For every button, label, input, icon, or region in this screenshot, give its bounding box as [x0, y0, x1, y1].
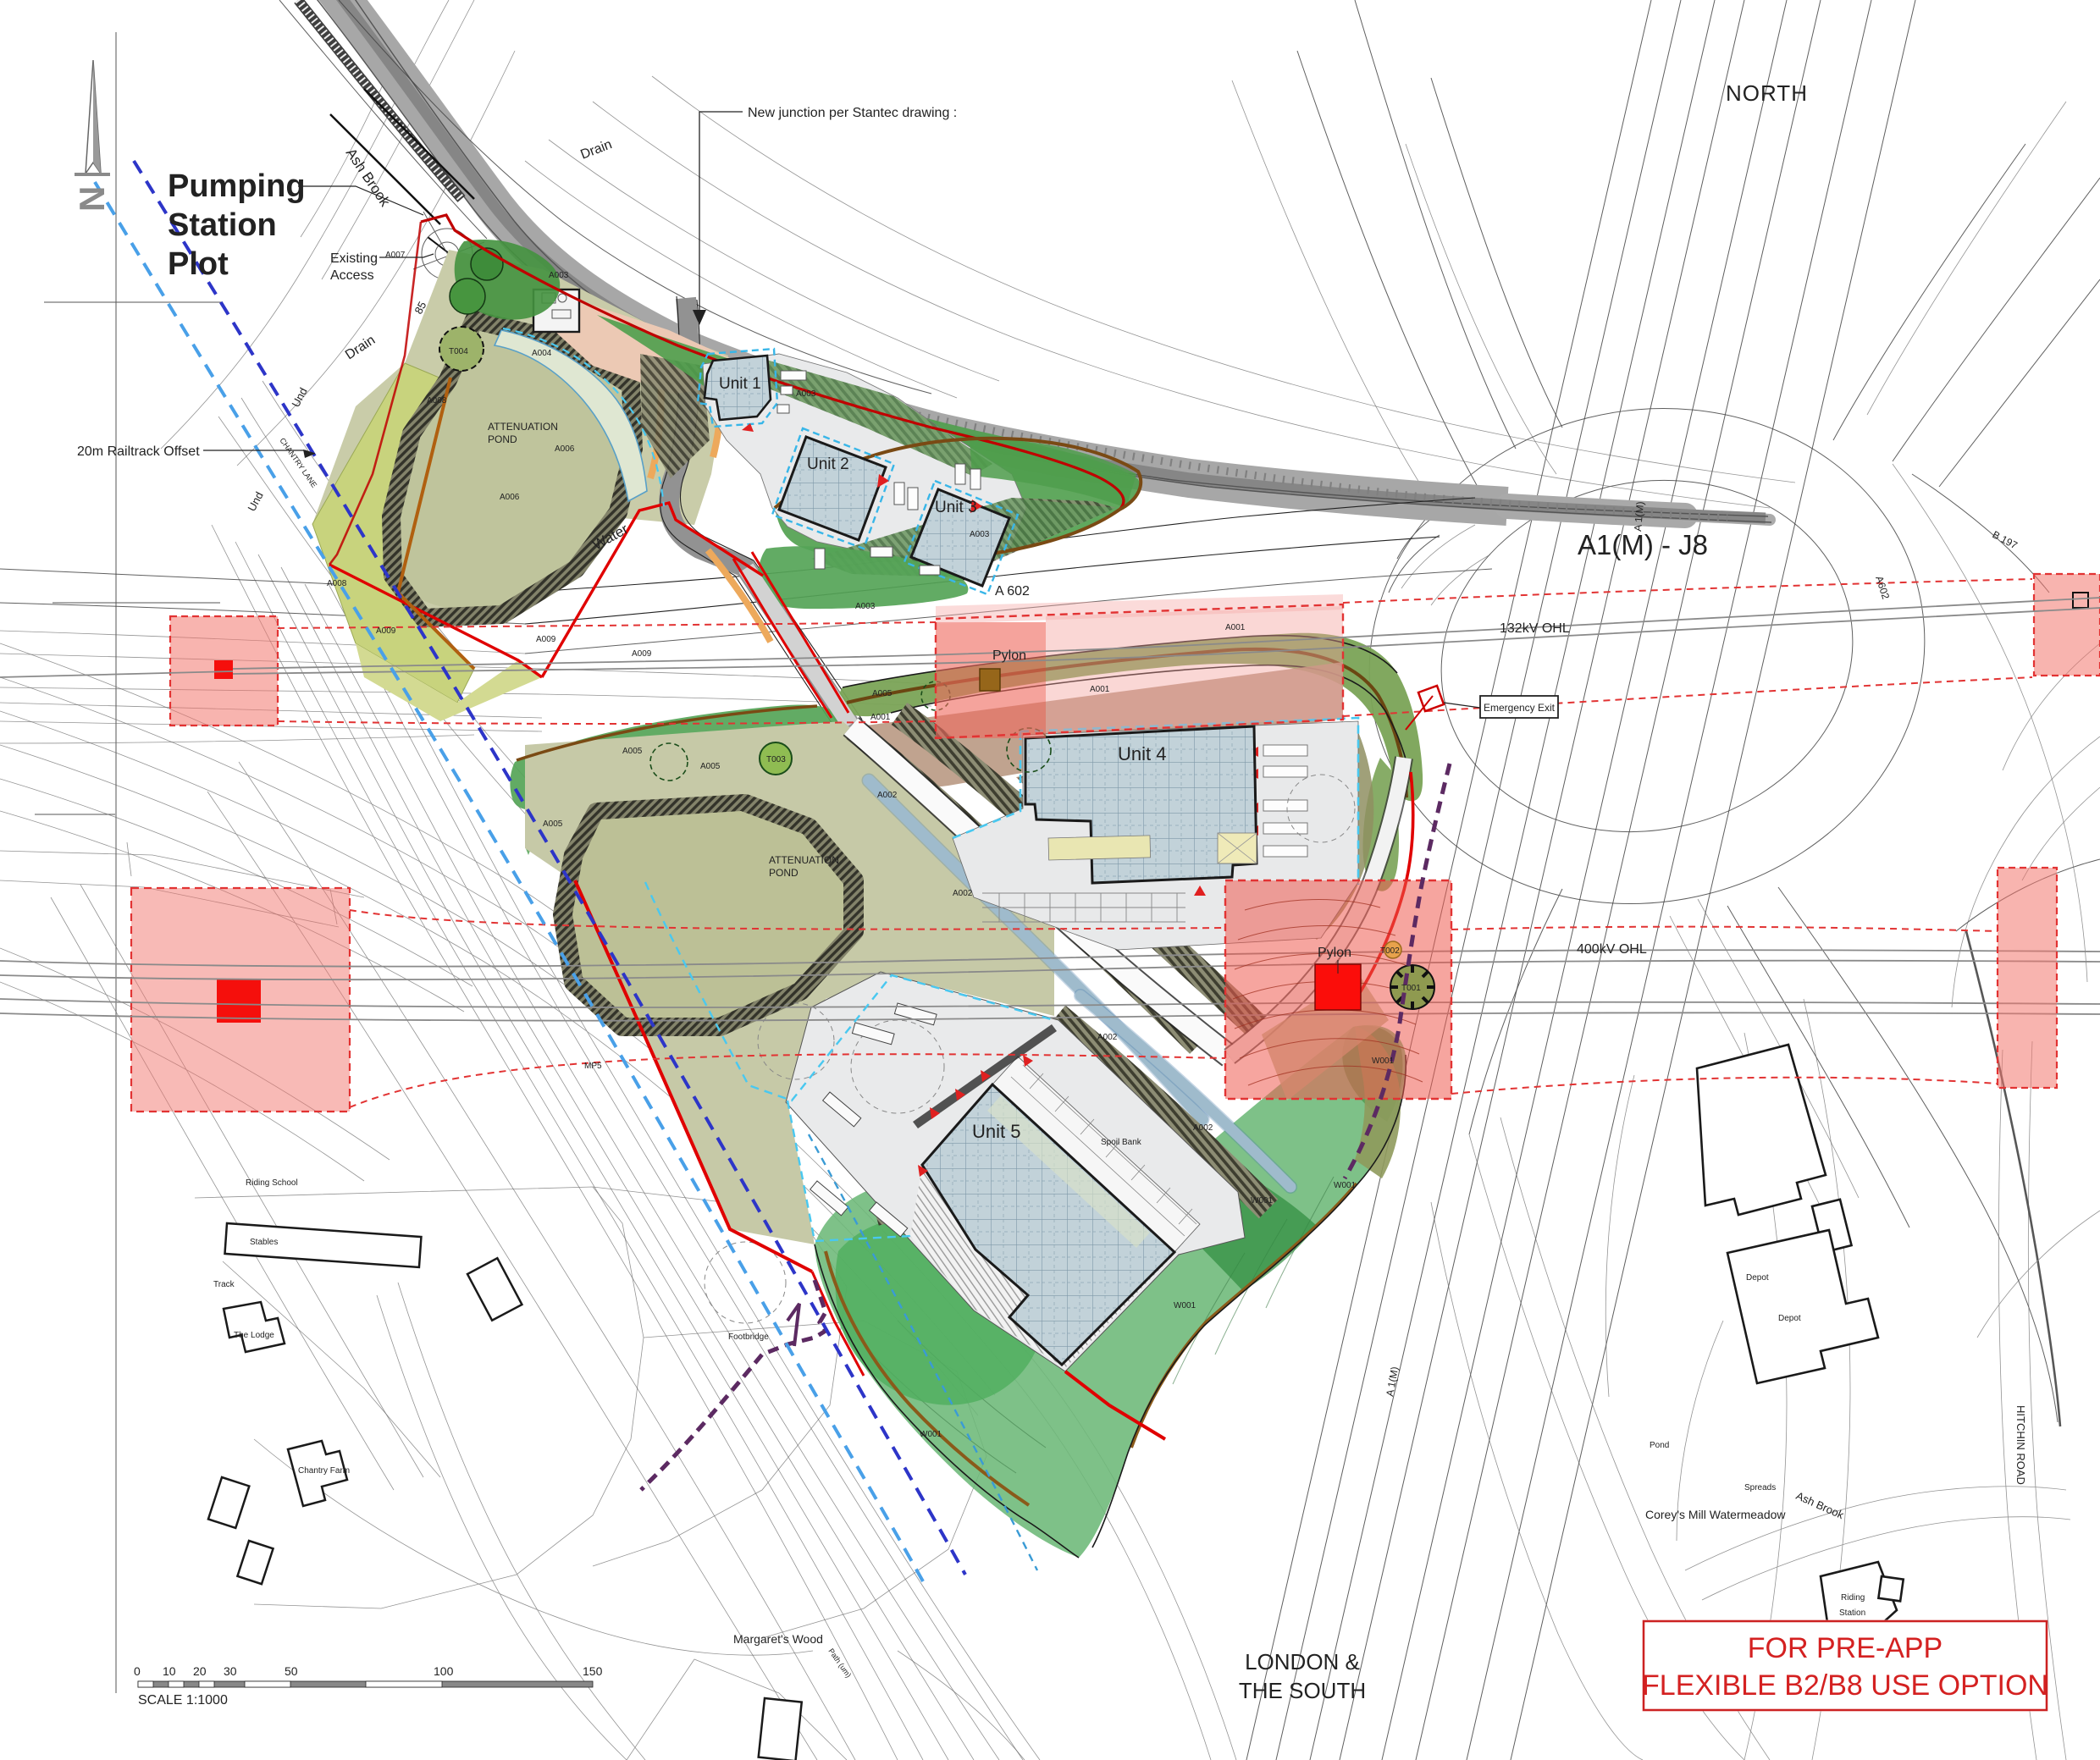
svg-text:Riding: Riding: [1841, 1593, 1865, 1603]
svg-text:A005: A005: [872, 689, 892, 698]
svg-text:A003: A003: [549, 271, 569, 280]
svg-text:A004: A004: [532, 349, 552, 358]
svg-text:0: 0: [134, 1664, 141, 1678]
svg-text:THE SOUTH: THE SOUTH: [1239, 1678, 1366, 1703]
svg-text:N: N: [72, 186, 112, 212]
svg-text:Plot: Plot: [168, 246, 229, 282]
svg-text:Corey's Mill Watermeadow: Corey's Mill Watermeadow: [1645, 1508, 1786, 1521]
svg-text:W001: W001: [1251, 1196, 1274, 1206]
svg-text:T004: T004: [449, 347, 468, 356]
svg-text:A002: A002: [1193, 1123, 1213, 1133]
svg-text:A001: A001: [870, 713, 891, 722]
svg-text:A001: A001: [1090, 685, 1110, 694]
svg-text:A009: A009: [536, 635, 556, 644]
svg-text:POND: POND: [769, 867, 799, 879]
svg-text:Unit 5: Unit 5: [972, 1121, 1020, 1142]
svg-text:Pylon: Pylon: [992, 648, 1026, 663]
svg-text:Access: Access: [330, 268, 374, 283]
svg-text:100: 100: [434, 1664, 454, 1678]
svg-text:New junction per Stantec drawi: New junction per Stantec drawing :: [748, 106, 957, 120]
svg-text:W001: W001: [920, 1430, 942, 1439]
svg-text:LONDON &: LONDON &: [1245, 1649, 1360, 1674]
svg-text:Chantry Farm: Chantry Farm: [298, 1466, 350, 1476]
svg-text:NORTH: NORTH: [1726, 80, 1808, 106]
svg-text:Track: Track: [213, 1280, 235, 1289]
svg-text:T001: T001: [1401, 984, 1421, 993]
svg-text:Depot: Depot: [1746, 1273, 1769, 1283]
svg-text:A003: A003: [855, 602, 876, 611]
svg-text:A005: A005: [543, 819, 563, 829]
svg-text:SCALE 1:1000: SCALE 1:1000: [138, 1693, 228, 1708]
svg-text:Stables: Stables: [250, 1238, 278, 1247]
svg-text:10: 10: [163, 1664, 176, 1678]
svg-text:Station: Station: [1839, 1608, 1865, 1618]
svg-text:Pond: Pond: [1650, 1441, 1669, 1450]
svg-text:132kV OHL: 132kV OHL: [1500, 621, 1570, 636]
svg-text:A009: A009: [632, 649, 652, 659]
svg-text:W001: W001: [1334, 1181, 1357, 1190]
svg-text:20: 20: [193, 1664, 207, 1678]
svg-text:ATTENUATION: ATTENUATION: [769, 854, 839, 866]
svg-text:Riding School: Riding School: [246, 1178, 298, 1188]
svg-text:MP5: MP5: [584, 1062, 602, 1071]
svg-text:400kV OHL: 400kV OHL: [1577, 942, 1647, 957]
svg-text:A003: A003: [796, 389, 816, 399]
svg-text:A1(M) - J8: A1(M) - J8: [1578, 529, 1708, 560]
svg-text:T002: T002: [1380, 946, 1400, 956]
svg-text:HITCHIN ROAD: HITCHIN ROAD: [2014, 1405, 2027, 1485]
svg-text:A005: A005: [622, 747, 643, 756]
svg-text:T003: T003: [766, 755, 786, 764]
svg-text:ATTENUATION: ATTENUATION: [488, 421, 558, 433]
svg-text:W001: W001: [1372, 1057, 1395, 1066]
svg-text:Spreads: Spreads: [1744, 1483, 1776, 1492]
svg-text:A006: A006: [555, 444, 575, 454]
svg-text:50: 50: [285, 1664, 298, 1678]
svg-text:Pumping: Pumping: [168, 168, 306, 204]
svg-text:Unit 3: Unit 3: [935, 499, 977, 516]
svg-text:The Lodge: The Lodge: [234, 1331, 274, 1340]
svg-text:W001: W001: [1174, 1301, 1196, 1310]
svg-text:Footbridge: Footbridge: [728, 1332, 769, 1342]
svg-text:Station: Station: [168, 207, 277, 243]
svg-text:Pylon: Pylon: [1318, 946, 1351, 960]
svg-text:30: 30: [224, 1664, 237, 1678]
svg-text:Unit 1: Unit 1: [719, 375, 761, 393]
svg-text:A008: A008: [427, 396, 447, 406]
svg-text:Spoil Bank: Spoil Bank: [1101, 1138, 1142, 1147]
svg-text:Margaret's Wood: Margaret's Wood: [733, 1632, 823, 1646]
svg-text:Depot: Depot: [1778, 1314, 1801, 1323]
svg-text:A002: A002: [1097, 1033, 1118, 1042]
svg-text:A005: A005: [700, 762, 721, 771]
svg-text:A003: A003: [970, 530, 990, 539]
svg-text:A002: A002: [953, 889, 973, 898]
svg-text:20m Railtrack Offset: 20m Railtrack Offset: [77, 444, 200, 459]
svg-text:Existing: Existing: [330, 251, 378, 266]
svg-text:A001: A001: [1225, 623, 1246, 632]
svg-text:A007: A007: [385, 251, 406, 260]
svg-text:A006: A006: [500, 493, 520, 502]
svg-text:Emergency Exit: Emergency Exit: [1484, 702, 1556, 714]
svg-text:A 602: A 602: [995, 584, 1030, 599]
svg-text:POND: POND: [488, 433, 517, 445]
svg-text:A009: A009: [376, 626, 396, 636]
svg-text:Unit 4: Unit 4: [1118, 743, 1166, 764]
svg-text:FLEXIBLE B2/B8 USE OPTION: FLEXIBLE B2/B8 USE OPTION: [1642, 1669, 2048, 1702]
svg-text:A002: A002: [877, 791, 898, 800]
svg-text:150: 150: [583, 1664, 603, 1678]
svg-text:FOR PRE-APP: FOR PRE-APP: [1748, 1632, 1942, 1664]
svg-text:Unit 2: Unit 2: [807, 455, 849, 473]
svg-text:A008: A008: [327, 579, 347, 588]
